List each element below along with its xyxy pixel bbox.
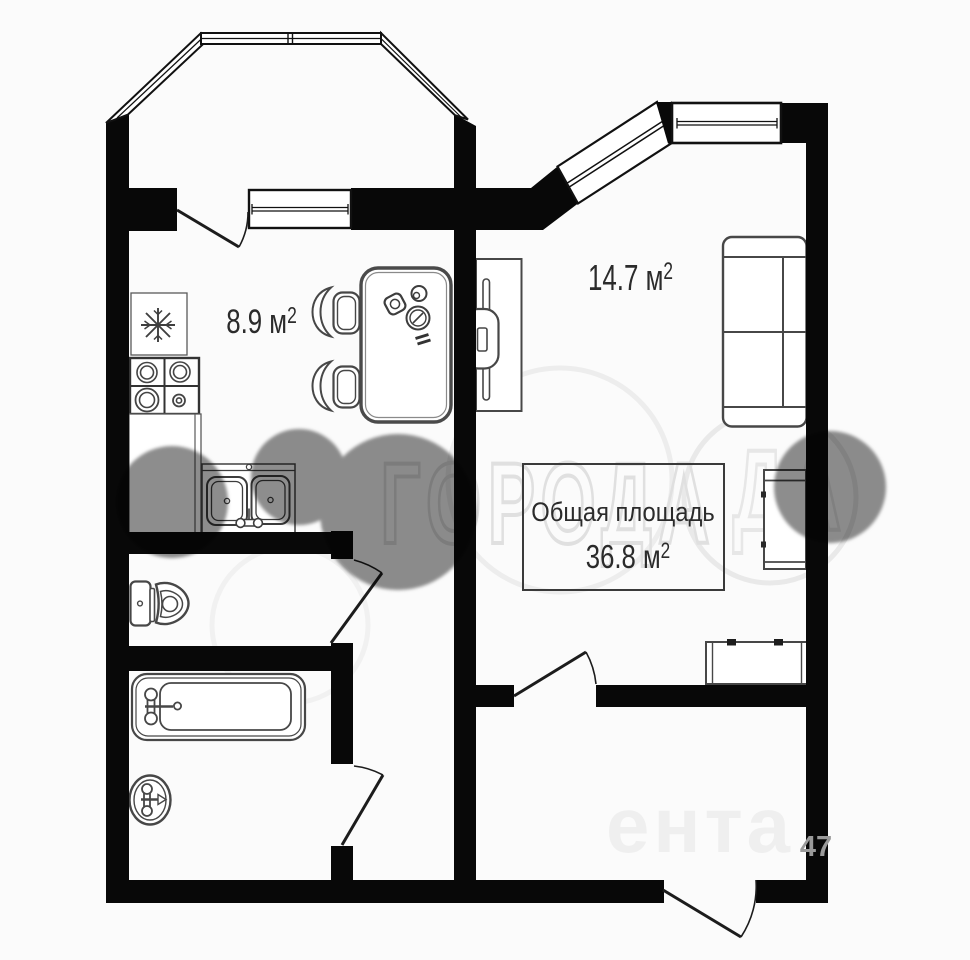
svg-text:36.8 м2: 36.8 м2 — [586, 539, 670, 576]
svg-text:Общая площадь: Общая площадь — [531, 498, 714, 528]
svg-text:8.9 м2: 8.9 м2 — [226, 304, 297, 341]
svg-text:ента: ента — [606, 781, 794, 869]
svg-text:47: 47 — [800, 831, 832, 863]
svg-text:14.7 м2: 14.7 м2 — [588, 258, 673, 298]
